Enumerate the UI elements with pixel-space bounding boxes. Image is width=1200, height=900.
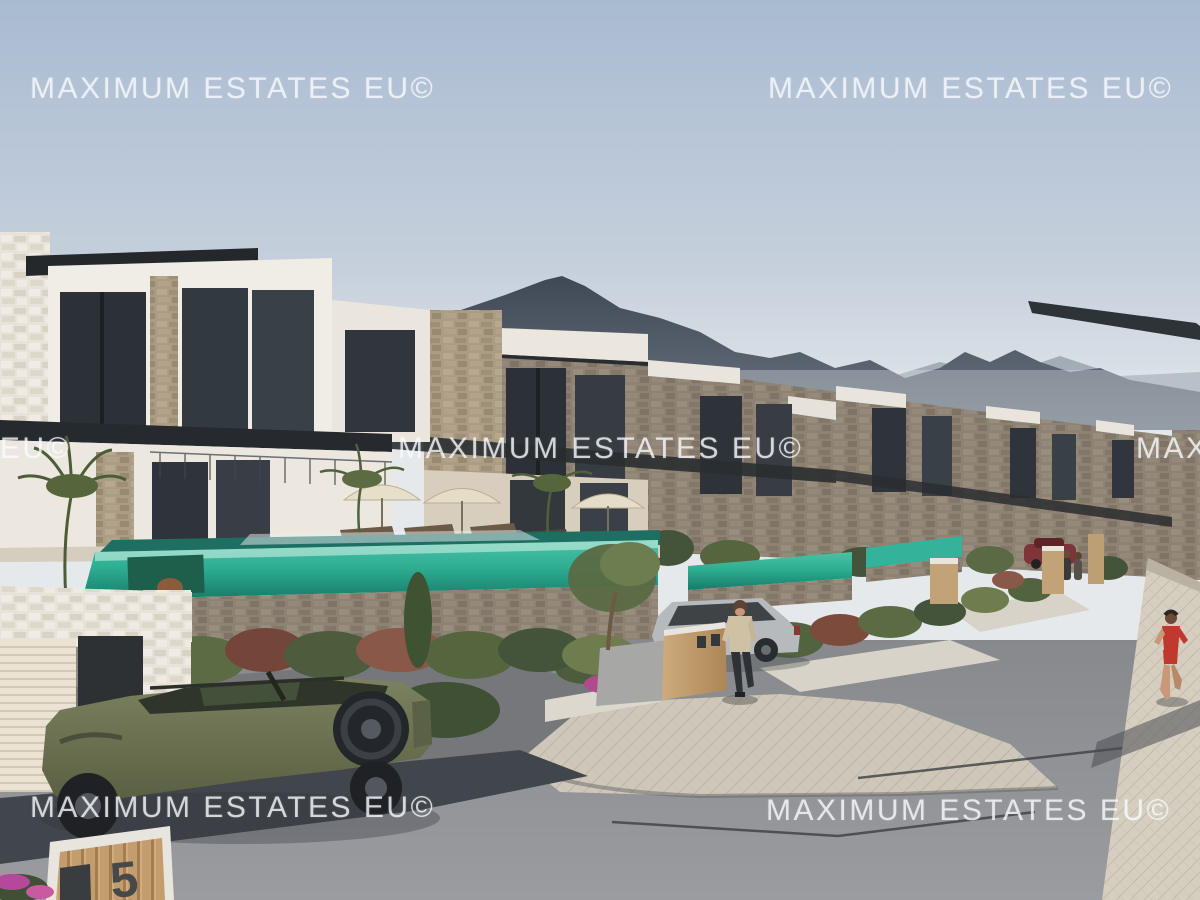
estate-render-scene: 5 MAXIMUM ESTATES EU© MAXIMUM ESTATES EU… (0, 0, 1200, 900)
villa-1 (0, 232, 430, 548)
streetlight-beam (1028, 301, 1200, 340)
villa-6 (1096, 420, 1200, 580)
villa-2 (424, 310, 648, 548)
scene-canvas: 5 (0, 0, 1200, 900)
